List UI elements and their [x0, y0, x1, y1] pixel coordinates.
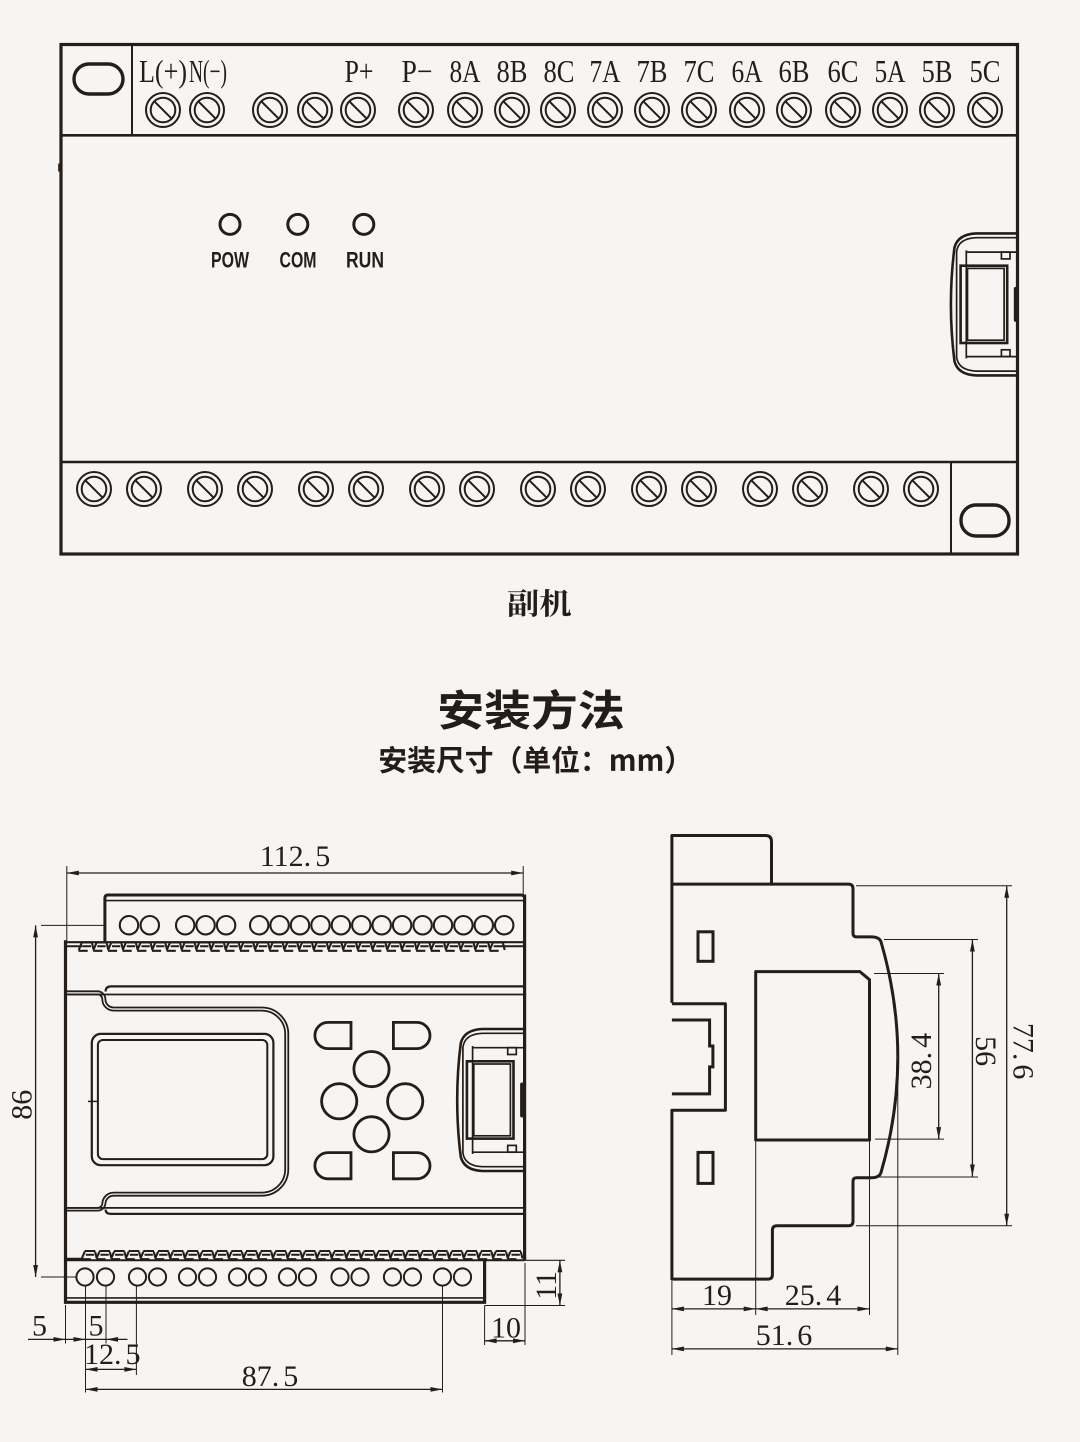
svg-text:P+: P+ — [345, 53, 374, 89]
svg-text:77.6: 77.6 — [1007, 1023, 1040, 1080]
svg-text:87.5: 87.5 — [242, 1360, 299, 1393]
svg-text:POW: POW — [211, 248, 249, 273]
svg-text:10: 10 — [491, 1312, 521, 1345]
svg-text:RUN: RUN — [346, 248, 384, 273]
svg-text:5A: 5A — [875, 53, 906, 89]
svg-text:5C: 5C — [970, 53, 1001, 89]
svg-text:19: 19 — [702, 1279, 732, 1312]
svg-text:8A: 8A — [450, 53, 481, 89]
svg-text:L(+): L(+) — [139, 53, 187, 89]
svg-text:COM: COM — [280, 248, 317, 273]
svg-text:6B: 6B — [779, 53, 810, 89]
svg-text:7C: 7C — [684, 53, 715, 89]
svg-text:8B: 8B — [497, 53, 528, 89]
svg-text:51.6: 51.6 — [756, 1319, 813, 1352]
svg-text:5B: 5B — [922, 53, 953, 89]
svg-text:6A: 6A — [732, 53, 763, 89]
svg-text:56: 56 — [969, 1036, 1002, 1066]
svg-text:86: 86 — [5, 1090, 38, 1120]
svg-text:12.5: 12.5 — [84, 1338, 141, 1371]
svg-text:7B: 7B — [637, 53, 668, 89]
svg-text:8C: 8C — [544, 53, 575, 89]
svg-text:N(−): N(−) — [189, 53, 227, 89]
svg-text:25.4: 25.4 — [785, 1279, 842, 1312]
svg-text:6C: 6C — [828, 53, 859, 89]
svg-text:P−: P− — [402, 53, 433, 89]
svg-text:7A: 7A — [590, 53, 621, 89]
svg-text:112.5: 112.5 — [260, 840, 330, 873]
svg-text:5: 5 — [32, 1310, 47, 1343]
svg-text:11: 11 — [530, 1271, 563, 1300]
svg-text:38.4: 38.4 — [905, 1033, 938, 1090]
